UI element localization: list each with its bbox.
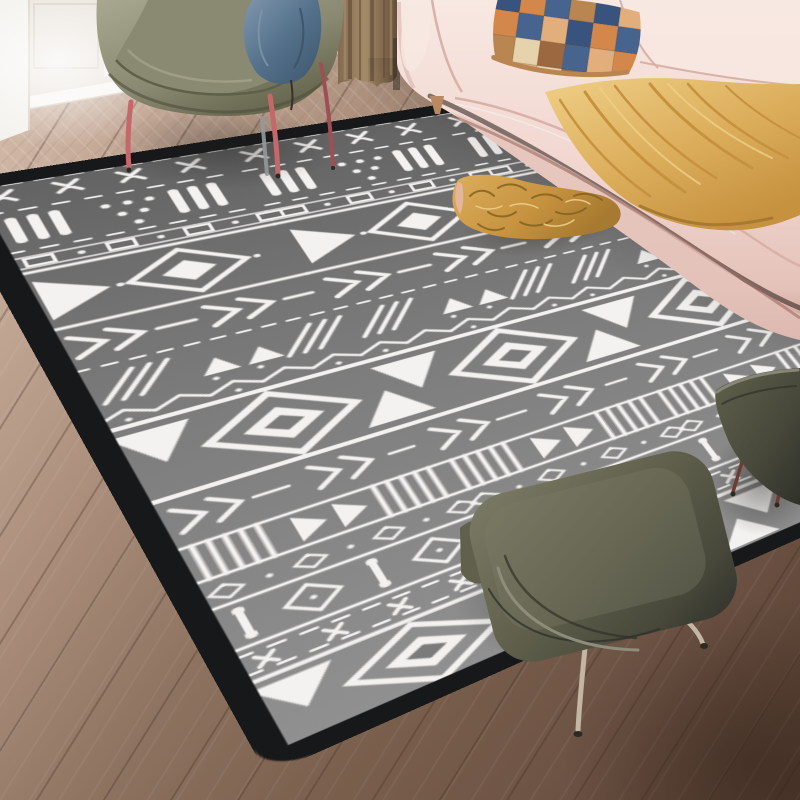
footstool-right-leg	[688, 622, 703, 644]
sofa	[396, 0, 800, 340]
lounge-chair	[97, 0, 345, 179]
living-room-scene: Living room photo: large gray bohemian t…	[0, 0, 800, 800]
side-chair	[715, 368, 800, 508]
footstool	[460, 443, 745, 737]
sofa-foot	[430, 96, 444, 114]
furniture-layer	[0, 0, 800, 800]
footstool-front-leg	[578, 648, 585, 730]
side-chair-seat	[715, 368, 800, 505]
